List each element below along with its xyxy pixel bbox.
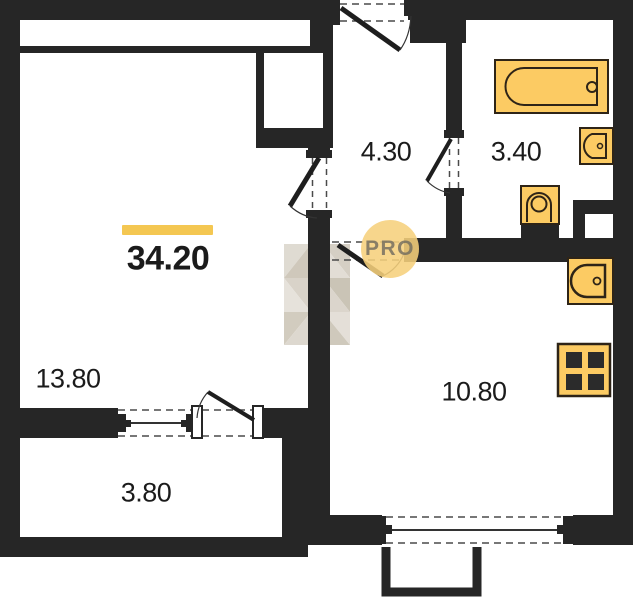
total-area-label: 34.20 [127,240,210,279]
kitchen-window [386,517,563,543]
bathroom-area-label: 3.40 [491,137,542,168]
washbasin-icon [580,128,613,164]
living-room-area-label: 13.80 [35,364,100,395]
hallway-area-label: 4.30 [361,137,412,168]
wardrobe-niche [20,20,310,46]
corner-nook [264,53,323,128]
pro-watermark-text: PRO [365,237,415,261]
entrance-door [340,4,411,50]
pro-watermark-badge: PRO [361,220,419,278]
living-door-opening [306,158,332,210]
french-balcony [386,547,477,592]
kitchen-area-label: 10.80 [441,377,506,408]
balcony-door [192,392,263,438]
total-area-accent-bar [122,225,213,235]
stove-icon [558,344,610,396]
duct-niche [585,214,613,238]
balcony-area-label: 3.80 [121,478,172,509]
floor-plan [0,0,633,600]
balcony-window [126,420,186,427]
toilet-icon [521,186,559,224]
floor-plan-canvas: 34.20 13.80 4.30 3.40 10.80 3.80 PRO [0,0,633,600]
kitchen-sink-icon [568,258,613,304]
bathtub-icon [495,60,608,113]
